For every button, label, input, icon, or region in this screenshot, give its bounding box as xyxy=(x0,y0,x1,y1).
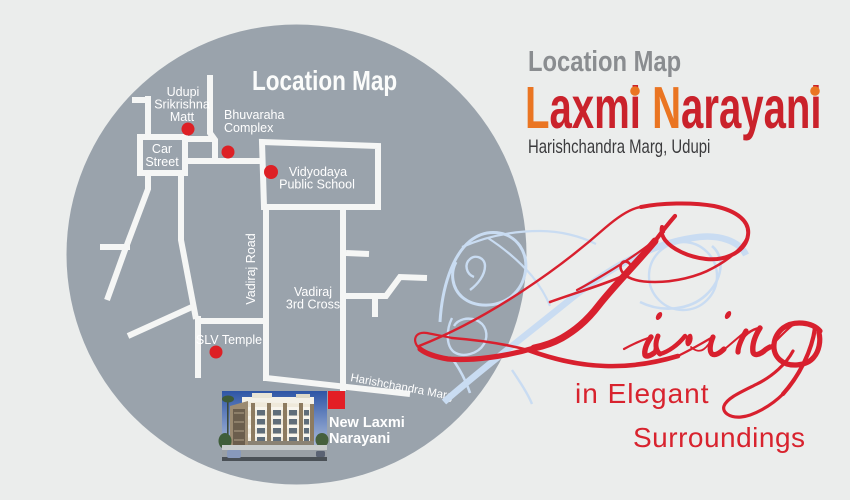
svg-text:Bhuvaraha: Bhuvaraha xyxy=(224,108,285,122)
svg-text:SLV Temple: SLV Temple xyxy=(196,333,262,347)
svg-text:in Elegant: in Elegant xyxy=(575,378,710,409)
svg-text:Street: Street xyxy=(145,155,179,169)
svg-text:Narayani: Narayani xyxy=(329,431,390,447)
svg-text:Matt: Matt xyxy=(170,110,195,124)
svg-text:Car: Car xyxy=(152,142,172,156)
svg-text:Location Map: Location Map xyxy=(528,45,681,78)
svg-text:Vadiraj Road: Vadiraj Road xyxy=(244,233,258,304)
svg-text:3rd Cross: 3rd Cross xyxy=(286,298,340,312)
svg-text:Complex: Complex xyxy=(224,121,274,135)
svg-text:Public School: Public School xyxy=(279,178,355,192)
svg-text:Surroundings: Surroundings xyxy=(633,422,806,453)
svg-text:New Laxmi: New Laxmi xyxy=(329,415,405,431)
svg-text:Location Map: Location Map xyxy=(252,66,397,97)
svg-text:Harishchandra Marg, Udupi: Harishchandra Marg, Udupi xyxy=(528,136,710,157)
svg-text:Laxmi Narayani: Laxmi Narayani xyxy=(525,74,822,141)
